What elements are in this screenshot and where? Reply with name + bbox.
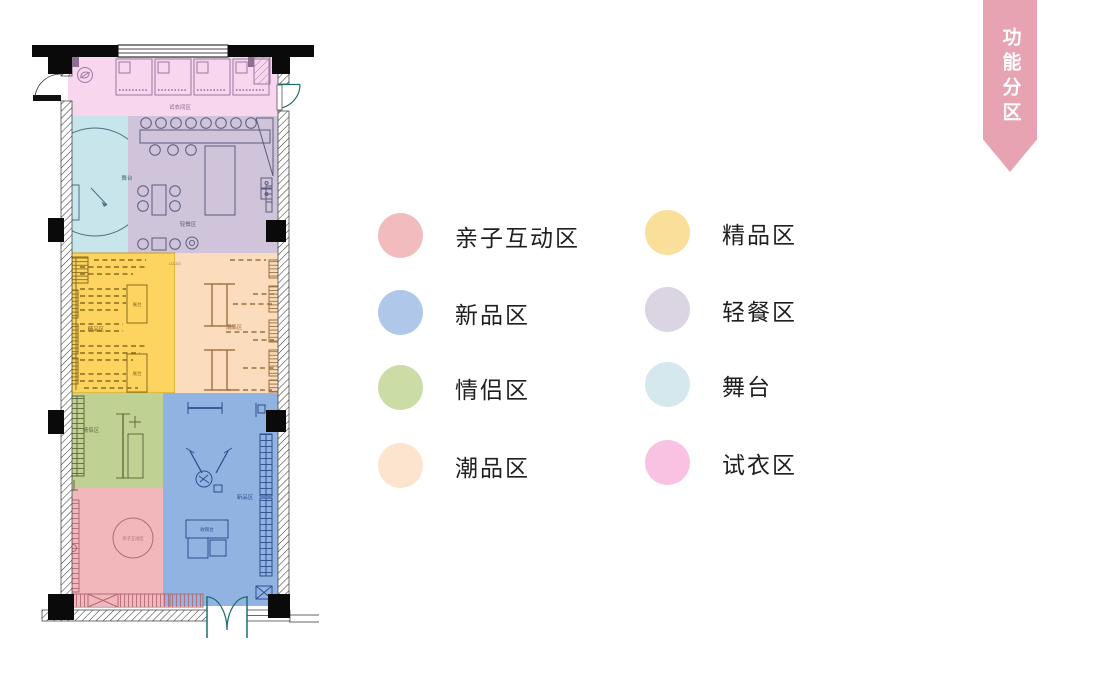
legend-label-light-meal: 轻餐区 [722, 293, 797, 327]
label-couple: 情侣区 [83, 426, 100, 434]
legend-item-fitting: 试衣区 [645, 440, 797, 485]
window [118, 45, 228, 57]
legend-swatch-new-products [378, 290, 423, 335]
page-title: 功能分区 [997, 27, 1024, 172]
left-door-leaf [33, 95, 61, 101]
right-door-swing [281, 85, 300, 109]
left-door-swing [35, 74, 61, 96]
label-new-products: 新品区 [237, 493, 254, 501]
legend-swatch-trendy [378, 443, 423, 488]
legend-item-stage: 舞台 [645, 362, 772, 407]
label-boutique: 精品区 [88, 325, 105, 333]
legend-label-stage: 舞台 [722, 368, 772, 402]
legend-swatch-fitting [645, 440, 690, 485]
label-display-stand-2: 展台 [133, 370, 142, 377]
legend-swatch-stage [645, 362, 690, 407]
legend-item-kids-interactive: 亲子互动区 [378, 213, 580, 258]
legend-label-fitting: 试衣区 [722, 446, 797, 480]
legend-label-boutique: 精品区 [722, 216, 797, 250]
label-display-stand-1: 展台 [133, 301, 142, 308]
legend-item-boutique: 精品区 [645, 210, 797, 255]
label-cashier: 收银台 [200, 526, 214, 533]
legend-item-trendy: 潮品区 [378, 443, 530, 488]
legend-item-couples: 情侣区 [378, 365, 530, 410]
legend-swatch-light-meal [645, 287, 690, 332]
legend-item-new-products: 新品区 [378, 290, 530, 335]
label-trendy: 潮品区 [226, 323, 243, 331]
legend-item-light-meal: 轻餐区 [645, 287, 797, 332]
legend-swatch-boutique [645, 210, 690, 255]
title-ribbon: 功能分区 [983, 0, 1037, 172]
label-fitting-area: 试衣间区 [169, 103, 192, 111]
legend-label-kids-interactive: 亲子互动区 [455, 219, 580, 253]
label-cafe: 轻餐区 [180, 220, 197, 228]
zone-cafe [128, 116, 278, 253]
right-door-leaf [277, 85, 282, 110]
label-kids: 亲子互动区 [122, 535, 144, 542]
label-logo-wall: LOGO [169, 261, 181, 266]
legend-label-trendy: 潮品区 [455, 449, 530, 483]
floor-plan: 试衣间区 舞台 轻餐区 [28, 38, 320, 642]
legend-label-new-products: 新品区 [455, 296, 530, 330]
label-stage: 舞台 [121, 174, 133, 182]
legend-swatch-kids-interactive [378, 213, 423, 258]
legend-swatch-couples [378, 365, 423, 410]
legend-label-couples: 情侣区 [455, 371, 530, 405]
page-root: 试衣间区 舞台 轻餐区 [0, 0, 1095, 675]
